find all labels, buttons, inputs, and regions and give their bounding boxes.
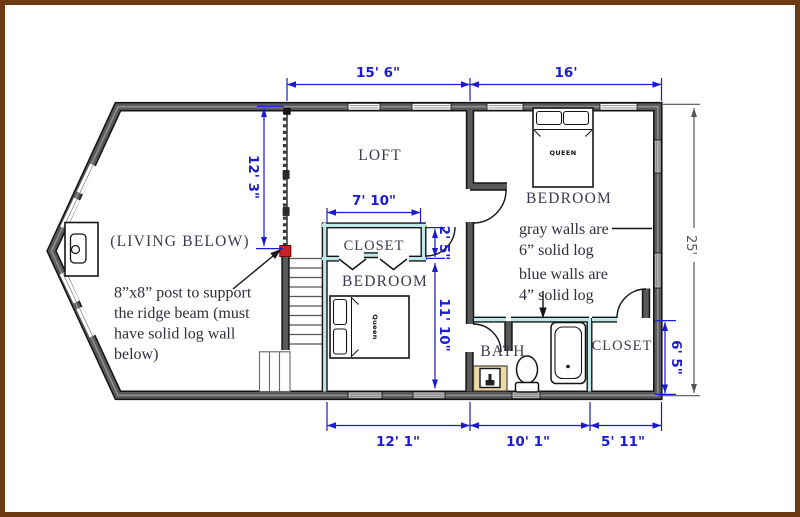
window bbox=[412, 103, 451, 110]
loft-railing bbox=[283, 108, 291, 246]
drain-dot bbox=[566, 365, 570, 369]
toilet bbox=[516, 356, 539, 392]
dimension-closet-upper-width: 7' 10" bbox=[352, 193, 396, 209]
room-label-bath: BATH bbox=[480, 343, 525, 360]
gray-walls-note-line2: 6” solid log bbox=[519, 242, 594, 259]
door-arc-bedroom-upper bbox=[473, 190, 506, 223]
window bbox=[600, 103, 637, 110]
room-label-bedroom-lower: BEDROOM bbox=[342, 273, 428, 290]
dimension-loft-depth: 12' 3" bbox=[245, 155, 261, 199]
pillow bbox=[537, 112, 562, 125]
staircase bbox=[260, 259, 323, 392]
blue-walls-note-line2: 4” solid log bbox=[519, 287, 594, 304]
apex-fixture bbox=[65, 223, 98, 277]
bifold-doors-closet-upper bbox=[339, 259, 407, 270]
pillow bbox=[334, 329, 347, 354]
floor-plan-image: QUEEN Queen bbox=[0, 0, 800, 517]
railing-knob bbox=[283, 207, 290, 216]
blue-walls-note-line1: blue walls are bbox=[519, 266, 608, 283]
dimension-bedroom-lower-depth: 11' 10" bbox=[436, 298, 452, 351]
dimension-overall-depth: 25' bbox=[683, 235, 698, 255]
queen-bed-lower bbox=[330, 296, 409, 358]
post-note-line2: the ridge beam (must bbox=[114, 305, 250, 322]
window bbox=[512, 392, 540, 399]
window bbox=[348, 392, 382, 399]
faucet-icon bbox=[486, 380, 495, 386]
blue-walls-arrowhead bbox=[540, 308, 546, 317]
dimension-closet-lower-width: 5' 11" bbox=[601, 434, 645, 450]
room-label-loft: LOFT bbox=[358, 147, 402, 164]
room-label-closet-upper: CLOSET bbox=[344, 238, 405, 254]
pillow bbox=[564, 112, 589, 125]
queen-bed-upper bbox=[533, 108, 593, 187]
post-note-line3: have solid log wall bbox=[114, 326, 236, 343]
post-note: 8”x8” post to support the ridge beam (mu… bbox=[114, 285, 252, 364]
bed-label-lower: Queen bbox=[371, 314, 379, 340]
window bbox=[413, 392, 445, 399]
dimension-bedroom-lower-width: 12' 1" bbox=[376, 434, 420, 450]
room-label-closet-lower: CLOSET bbox=[592, 338, 653, 354]
door-arc-closet-lower bbox=[617, 289, 646, 318]
ridge-post bbox=[280, 246, 291, 257]
window bbox=[654, 140, 661, 173]
window bbox=[348, 103, 380, 110]
bed-label-upper: QUEEN bbox=[549, 149, 576, 157]
bathroom-vanity bbox=[474, 366, 508, 391]
dimension-bath-width: 10' 1" bbox=[506, 434, 550, 450]
room-label-living-below: (LIVING BELOW) bbox=[110, 233, 249, 250]
railing-knob bbox=[283, 170, 290, 179]
gray-walls-note: gray walls are 6” solid log bbox=[519, 221, 609, 259]
bathtub bbox=[551, 323, 586, 384]
post-note-line4: below) bbox=[114, 346, 158, 363]
dimension-overall-depth-marks: 25' bbox=[683, 108, 698, 393]
pillow bbox=[334, 300, 347, 325]
dimension-closet-lower-depth: 6' 5" bbox=[668, 340, 684, 375]
railing-end-block bbox=[284, 108, 291, 115]
floor-plan-svg: QUEEN Queen bbox=[0, 0, 800, 517]
stair-treads bbox=[290, 259, 323, 345]
window bbox=[654, 253, 661, 288]
window bbox=[487, 103, 523, 110]
dimension-bedroom-upper-width: 16' bbox=[555, 65, 578, 81]
gray-walls-note-line1: gray walls are bbox=[519, 221, 609, 238]
stair-landing bbox=[260, 352, 291, 392]
blue-walls-note: blue walls are 4” solid log bbox=[519, 266, 608, 304]
dimension-loft-width: 15' 6" bbox=[356, 65, 400, 81]
dimension-doorway: 2' 5" bbox=[436, 226, 452, 261]
room-label-bedroom-upper: BEDROOM bbox=[526, 190, 612, 207]
post-note-line1: 8”x8” post to support bbox=[114, 285, 252, 302]
